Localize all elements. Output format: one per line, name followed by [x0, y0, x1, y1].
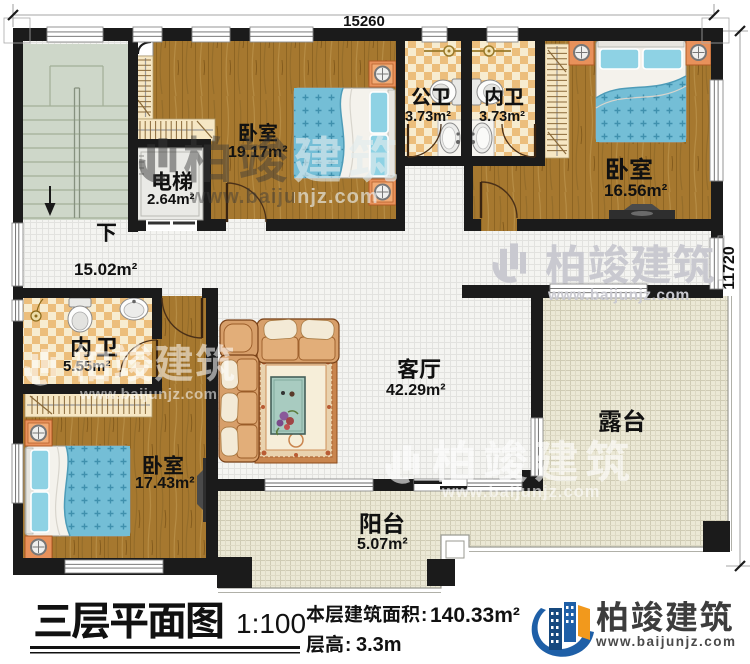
svg-text:www.baijunjz.com: www.baijunjz.com — [441, 483, 600, 501]
svg-text:3.73m²: 3.73m² — [479, 109, 525, 125]
svg-text:www.baijunjz.com: www.baijunjz.com — [79, 386, 217, 403]
svg-text:11720: 11720 — [721, 246, 738, 290]
svg-text:3.3m: 3.3m — [356, 634, 402, 656]
svg-text:3.73m²: 3.73m² — [405, 109, 451, 125]
svg-text::: : — [345, 635, 351, 656]
svg-text:140.33m²: 140.33m² — [430, 604, 520, 627]
svg-text:2.64m²: 2.64m² — [147, 191, 195, 208]
svg-text:17.43m²: 17.43m² — [135, 475, 195, 492]
svg-text:42.29m²: 42.29m² — [386, 382, 446, 399]
svg-text:15260: 15260 — [343, 13, 385, 30]
svg-text:16.56m²: 16.56m² — [604, 181, 668, 200]
svg-text::: : — [421, 605, 427, 626]
svg-text:5.07m²: 5.07m² — [357, 536, 408, 553]
svg-text:15.02m²: 15.02m² — [74, 260, 138, 279]
svg-text:www.baijunjz.com: www.baijunjz.com — [595, 634, 737, 649]
svg-text:1:100: 1:100 — [236, 608, 306, 639]
svg-text:www.baijunjz.com: www.baijunjz.com — [547, 287, 690, 304]
